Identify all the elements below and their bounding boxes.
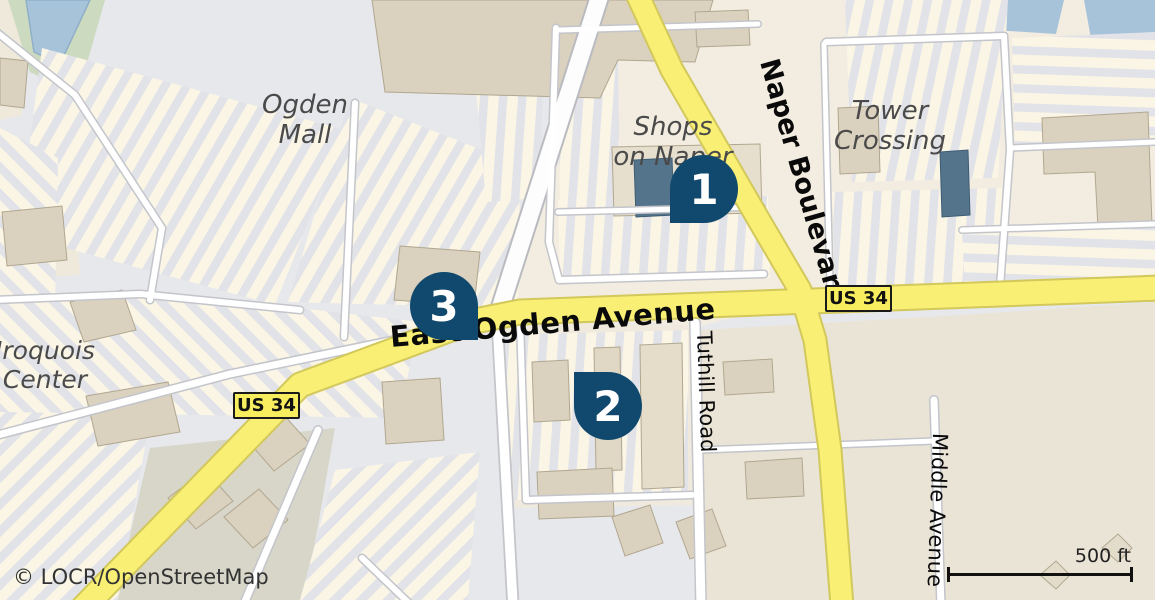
- map-attribution: © LOCR/OpenStreetMap: [13, 565, 269, 589]
- route-shield-us34: US 34: [825, 285, 892, 312]
- scale-bar-tick: [947, 567, 950, 582]
- scale-bar: 500 ft: [947, 545, 1133, 585]
- place-label-iroquois-center: Iroquois Center: [0, 336, 125, 394]
- scale-bar-line: [947, 573, 1132, 576]
- route-shield-us34: US 34: [233, 392, 300, 419]
- map-base: [0, 0, 1155, 600]
- street-label-tuthill-road: Tuthill Road: [692, 331, 720, 453]
- map-marker-3[interactable]: 3: [410, 272, 478, 340]
- place-label-line: Tower: [800, 96, 980, 126]
- map-canvas: Ogden Mall Shops on Naper Tower Crossing…: [0, 0, 1155, 600]
- place-label-ogden-mall: Ogden Mall: [230, 90, 380, 150]
- place-label-line: Ogden: [230, 90, 380, 120]
- place-label-tower-crossing: Tower Crossing: [800, 96, 980, 156]
- place-label-line: Center: [0, 365, 125, 394]
- map-marker-1[interactable]: 1: [670, 155, 738, 223]
- map-marker-2[interactable]: 2: [574, 372, 642, 440]
- place-label-line: on Naper: [588, 142, 758, 172]
- place-label-shops-on-naper: Shops on Naper: [588, 112, 758, 172]
- place-label-line: Iroquois: [0, 336, 125, 365]
- place-label-line: Mall: [230, 120, 380, 150]
- scale-bar-tick: [1130, 567, 1133, 582]
- place-label-line: Shops: [588, 112, 758, 142]
- scale-bar-label: 500 ft: [1075, 545, 1131, 567]
- place-label-line: Crossing: [800, 126, 980, 156]
